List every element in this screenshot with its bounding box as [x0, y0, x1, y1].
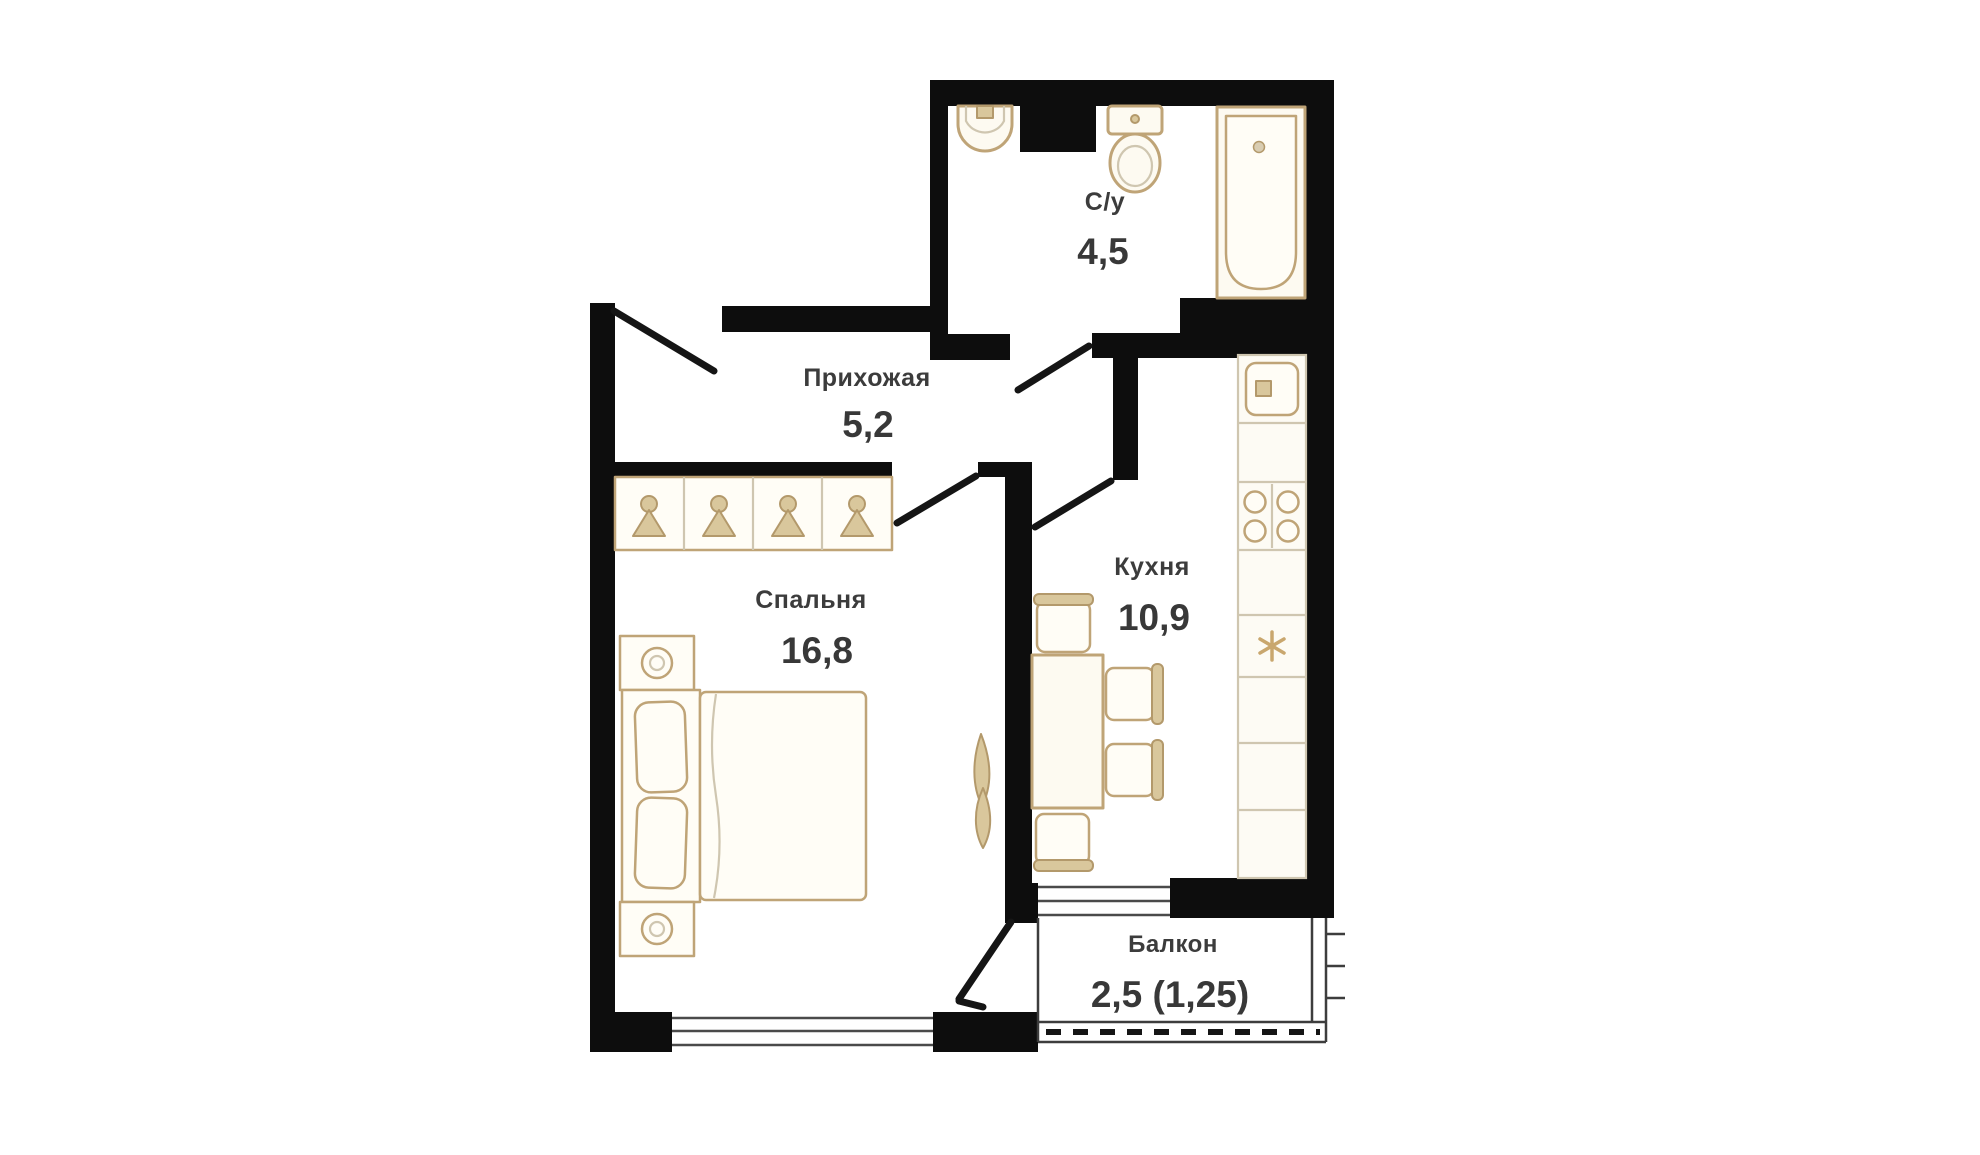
floor-plan-page: С/у 4,5 Прихожая 5,2 — [0, 0, 1980, 1155]
entry-door-swing-icon — [614, 311, 714, 371]
hallway-area: 5,2 — [842, 404, 893, 445]
chair-icon — [1034, 814, 1093, 871]
balcony-area: 2,5 (1,25) — [1091, 974, 1249, 1015]
wall-segment — [1170, 878, 1334, 918]
wall-segment — [590, 303, 615, 1052]
wall-segment — [930, 334, 1010, 360]
balcony-label: Балкон — [1128, 931, 1218, 958]
toilet-icon — [1108, 106, 1162, 192]
plant-icon — [974, 734, 990, 848]
bedroom-area: 16,8 — [781, 630, 853, 671]
double-bed-icon — [620, 636, 866, 956]
floor-plan: С/у 4,5 Прихожая 5,2 — [0, 0, 1980, 1155]
ventilation-shaft — [1020, 106, 1096, 152]
wall-segment — [1306, 80, 1334, 918]
room-bathroom: С/у 4,5 — [958, 106, 1305, 298]
bedroom-label: Спальня — [755, 586, 867, 614]
chair-icon — [1106, 740, 1163, 800]
wall-segment — [722, 306, 948, 332]
dining-table-icon — [1032, 655, 1103, 808]
room-bedroom: Спальня 16,8 — [620, 586, 990, 956]
wall-segment — [930, 80, 1334, 106]
wall-segment — [933, 1012, 1038, 1052]
kitchen-counter — [1238, 355, 1306, 878]
kitchen-balcony-window-icon — [1038, 887, 1170, 915]
wardrobe — [615, 477, 892, 550]
kitchen-door-swing-icon — [1035, 481, 1111, 527]
bathroom-area: 4,5 — [1077, 231, 1128, 272]
chair-icon — [1106, 664, 1163, 724]
bathroom-door-swing-icon — [1018, 346, 1089, 390]
kitchen-area: 10,9 — [1118, 597, 1190, 638]
wall-segment — [1092, 333, 1188, 358]
nightstand-lamp-icon — [620, 636, 694, 690]
room-balcony: Балкон 2,5 (1,25) — [1038, 918, 1345, 1042]
bathtub-icon — [1217, 107, 1305, 298]
room-hallway: Прихожая 5,2 — [803, 364, 930, 445]
bedroom-door-swing-icon — [897, 476, 976, 523]
nightstand-lamp-icon — [620, 902, 694, 956]
hallway-label: Прихожая — [803, 364, 930, 392]
wall-segment — [1180, 298, 1334, 358]
wall-segment — [1113, 343, 1138, 480]
room-kitchen: Кухня 10,9 — [1032, 355, 1306, 878]
wall-segment — [613, 462, 892, 477]
wash-basin-icon — [958, 106, 1012, 151]
wall-segment — [1005, 470, 1032, 883]
kitchen-label: Кухня — [1114, 553, 1190, 581]
wall-segment — [1005, 883, 1038, 923]
bedroom-window-icon — [672, 1018, 933, 1045]
chair-icon — [1034, 594, 1093, 652]
counter-sink-icon — [1246, 363, 1298, 415]
bathroom-label: С/у — [1085, 188, 1125, 216]
balcony-door-swing-icon — [959, 922, 1011, 1007]
wall-segment — [590, 1012, 672, 1052]
